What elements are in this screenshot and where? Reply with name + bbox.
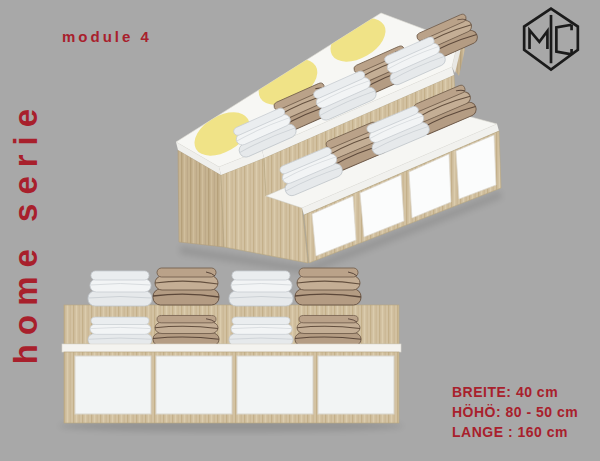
front-upper-towels [88, 268, 361, 306]
front-door-panel [156, 356, 232, 414]
spec-length: LANGE : 160 cm [452, 422, 578, 442]
front-view-render [59, 268, 403, 432]
front-countertop-strip [62, 344, 401, 352]
brand-logo [517, 3, 585, 77]
dimension-specs: BREITE: 40 cm HÖHÖ: 80 - 50 cm LANGE : 1… [452, 382, 578, 442]
presentation-page: module 4 home serie BREITE: 40 cm HÖHÖ: … [0, 0, 600, 461]
module-title: module 4 [62, 28, 152, 45]
logo-letter-c [556, 25, 571, 55]
spec-width: BREITE: 40 cm [452, 382, 578, 402]
front-door-panel [318, 356, 394, 414]
iso-view-render [176, 9, 502, 274]
front-door-panel [237, 356, 313, 414]
front-door-panel [75, 356, 151, 414]
logo-letter-m [530, 30, 548, 49]
series-title: home serie [7, 100, 45, 364]
spec-height: HÖHÖ: 80 - 50 cm [452, 402, 578, 422]
